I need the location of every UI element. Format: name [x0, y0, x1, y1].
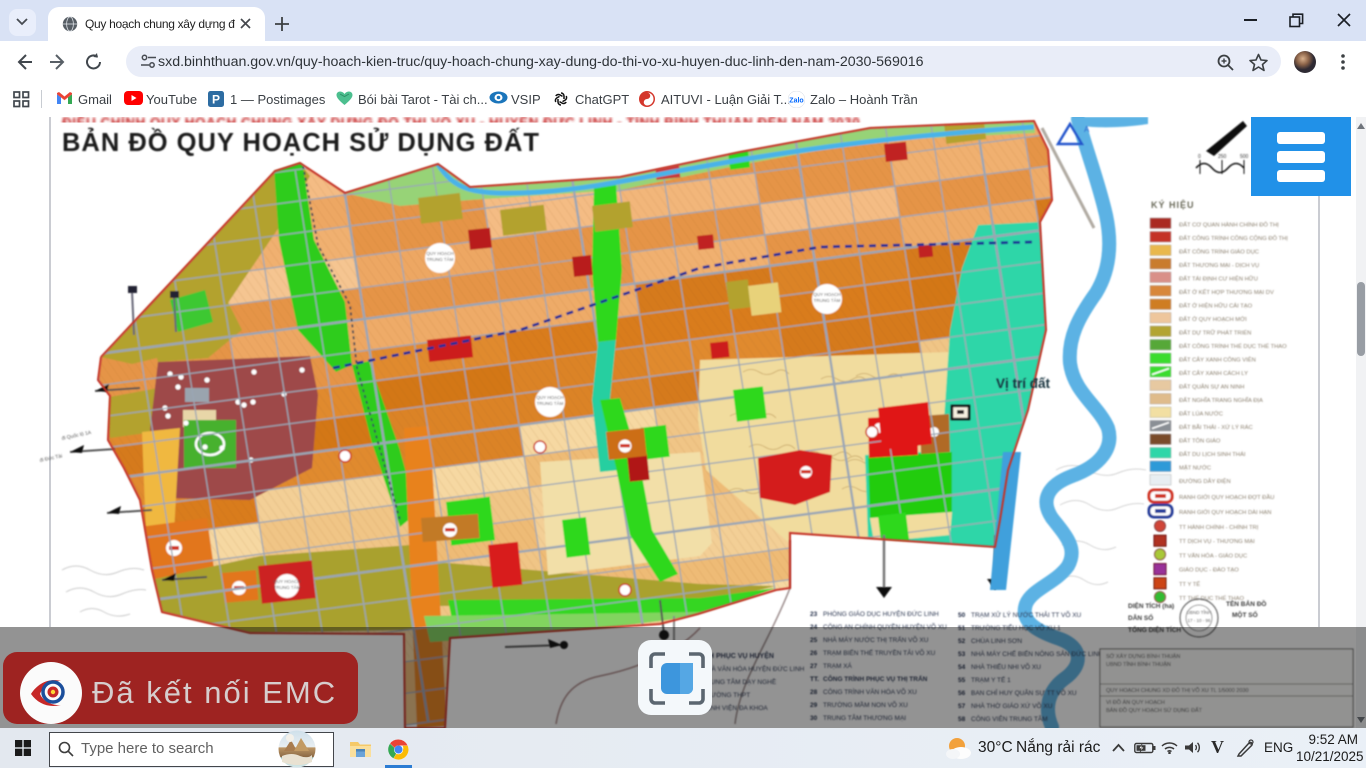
svg-text:ĐẤT Ở HIỆN HỮU CẢI TẠO: ĐẤT Ở HIỆN HỮU CẢI TẠO [1179, 302, 1253, 310]
svg-text:500: 500 [1240, 154, 1249, 160]
svg-text:ĐẤT BÃI THẢI - XỬ LÝ RÁC: ĐẤT BÃI THẢI - XỬ LÝ RÁC [1179, 424, 1253, 431]
svg-text:TRUNG TÂM: TRUNG TÂM [274, 584, 301, 590]
svg-text:RANH GIỚI QUY HOẠCH DÀI HẠN: RANH GIỚI QUY HOẠCH DÀI HẠN [1179, 509, 1271, 516]
svg-text:23: 23 [810, 611, 818, 618]
svg-text:Đã kết nối EMC: Đã kết nối EMC [92, 675, 337, 710]
svg-text:ĐẤT TÔN GIÁO: ĐẤT TÔN GIÁO [1179, 438, 1221, 445]
svg-text:TT Y TẾ: TT Y TẾ [1179, 581, 1200, 588]
svg-text:ĐẤT CÔNG TRÌNH GIÁO DỤC: ĐẤT CÔNG TRÌNH GIÁO DỤC [1179, 249, 1259, 256]
svg-text:ĐẤT Ở QUY HOẠCH MỚI: ĐẤT Ở QUY HOẠCH MỚI [1179, 316, 1247, 323]
svg-text:0: 0 [1198, 154, 1201, 160]
svg-text:TRUNG TÂM: TRUNG TÂM [537, 400, 564, 406]
svg-text:MẶT NƯỚC: MẶT NƯỚC [1179, 465, 1211, 472]
svg-text:ĐẤT Ở KẾT HỢP THƯƠNG MẠI DV: ĐẤT Ở KẾT HỢP THƯƠNG MẠI DV [1179, 289, 1274, 296]
svg-text:ĐẤT DU LỊCH SINH THÁI: ĐẤT DU LỊCH SINH THÁI [1179, 451, 1246, 458]
svg-text:BẢN ĐỒ QUY HOẠCH SỬ DỤNG ĐẤT: BẢN ĐỒ QUY HOẠCH SỬ DỤNG ĐẤT [62, 127, 540, 157]
svg-text:DIỆN TÍCH (ha): DIỆN TÍCH (ha) [1128, 601, 1174, 610]
svg-text:250: 250 [1218, 154, 1227, 160]
svg-text:PHÒNG GIÁO DỤC HUYỆN ĐỨC LINH: PHÒNG GIÁO DỤC HUYỆN ĐỨC LINH [823, 609, 939, 618]
svg-text:GIÁO DỤC - ĐÀO TẠO: GIÁO DỤC - ĐÀO TẠO [1179, 567, 1239, 574]
svg-text:ĐẤT CÂY XANH CÁCH LY: ĐẤT CÂY XANH CÁCH LY [1179, 370, 1248, 377]
svg-text:ĐẤT DỰ TRỮ PHÁT TRIỂN: ĐẤT DỰ TRỮ PHÁT TRIỂN [1179, 330, 1251, 337]
svg-text:Vị trí đất: Vị trí đất [996, 376, 1051, 391]
svg-text:UBND TỈNH: UBND TỈNH [1187, 609, 1211, 615]
svg-text:QUY HOẠCH: QUY HOẠCH [426, 251, 453, 256]
svg-text:TRẠM XỬ LÝ NƯỚC THẢI TT VÕ XU: TRẠM XỬ LÝ NƯỚC THẢI TT VÕ XU [971, 610, 1082, 619]
svg-text:TT HÀNH CHÍNH - CHÍNH TRỊ: TT HÀNH CHÍNH - CHÍNH TRỊ [1179, 524, 1259, 531]
svg-text:17 - 10 - 96: 17 - 10 - 96 [1187, 618, 1211, 623]
svg-text:QUY HOẠCH: QUY HOẠCH [813, 292, 840, 297]
svg-text:ĐẤT CÂY XANH CÔNG VIÊN: ĐẤT CÂY XANH CÔNG VIÊN [1179, 356, 1256, 364]
svg-text:ĐẤT QUÂN SỰ AN NINH: ĐẤT QUÂN SỰ AN NINH [1179, 384, 1244, 391]
svg-text:Zalo: Zalo [789, 98, 803, 105]
svg-text:TRUNG TÂM: TRUNG TÂM [427, 256, 454, 262]
svg-text:QUY HOẠCH: QUY HOẠCH [536, 395, 563, 400]
svg-text:A: A [1084, 125, 1090, 134]
svg-text:TT VĂN HÓA - GIÁO DỤC: TT VĂN HÓA - GIÁO DỤC [1179, 552, 1247, 559]
svg-text:TT DỊCH VỤ - THƯƠNG MẠI: TT DỊCH VỤ - THƯƠNG MẠI [1179, 539, 1255, 545]
svg-text:QUY HOẠCH: QUY HOẠCH [273, 579, 300, 584]
svg-text:P: P [212, 93, 220, 107]
svg-text:ĐẤT CƠ QUAN HÀNH CHÍNH ĐÔ THỊ: ĐẤT CƠ QUAN HÀNH CHÍNH ĐÔ THỊ [1179, 222, 1279, 229]
svg-text:ĐẤT LÚA NƯỚC: ĐẤT LÚA NƯỚC [1179, 411, 1223, 418]
svg-text:RANH GIỚI QUY HOẠCH ĐỢT ĐẦU: RANH GIỚI QUY HOẠCH ĐỢT ĐẦU [1179, 494, 1274, 501]
svg-text:ĐẤT TÁI ĐỊNH CƯ HIỆN HỮU: ĐẤT TÁI ĐỊNH CƯ HIỆN HỮU [1179, 275, 1258, 283]
svg-text:50: 50 [958, 612, 966, 619]
svg-text:ĐẤT THƯƠNG MẠI - DỊCH VỤ: ĐẤT THƯƠNG MẠI - DỊCH VỤ [1179, 262, 1259, 269]
svg-text:KÝ HIỆU: KÝ HIỆU [1151, 199, 1195, 210]
svg-text:ĐẤT NGHĨA TRANG NGHĨA ĐỊA: ĐẤT NGHĨA TRANG NGHĨA ĐỊA [1179, 397, 1263, 404]
svg-text:ĐẤT CÔNG TRÌNH THỂ DỤC THỂ THA: ĐẤT CÔNG TRÌNH THỂ DỤC THỂ THAO [1179, 343, 1287, 350]
svg-text:ĐẤT CÔNG TRÌNH CÔNG CỘNG ĐÔ TH: ĐẤT CÔNG TRÌNH CÔNG CỘNG ĐÔ THỊ [1179, 235, 1288, 242]
svg-text:ĐƯỜNG DÂY ĐIỆN: ĐƯỜNG DÂY ĐIỆN [1179, 477, 1231, 485]
svg-text:TRUNG TÂM: TRUNG TÂM [814, 297, 841, 303]
